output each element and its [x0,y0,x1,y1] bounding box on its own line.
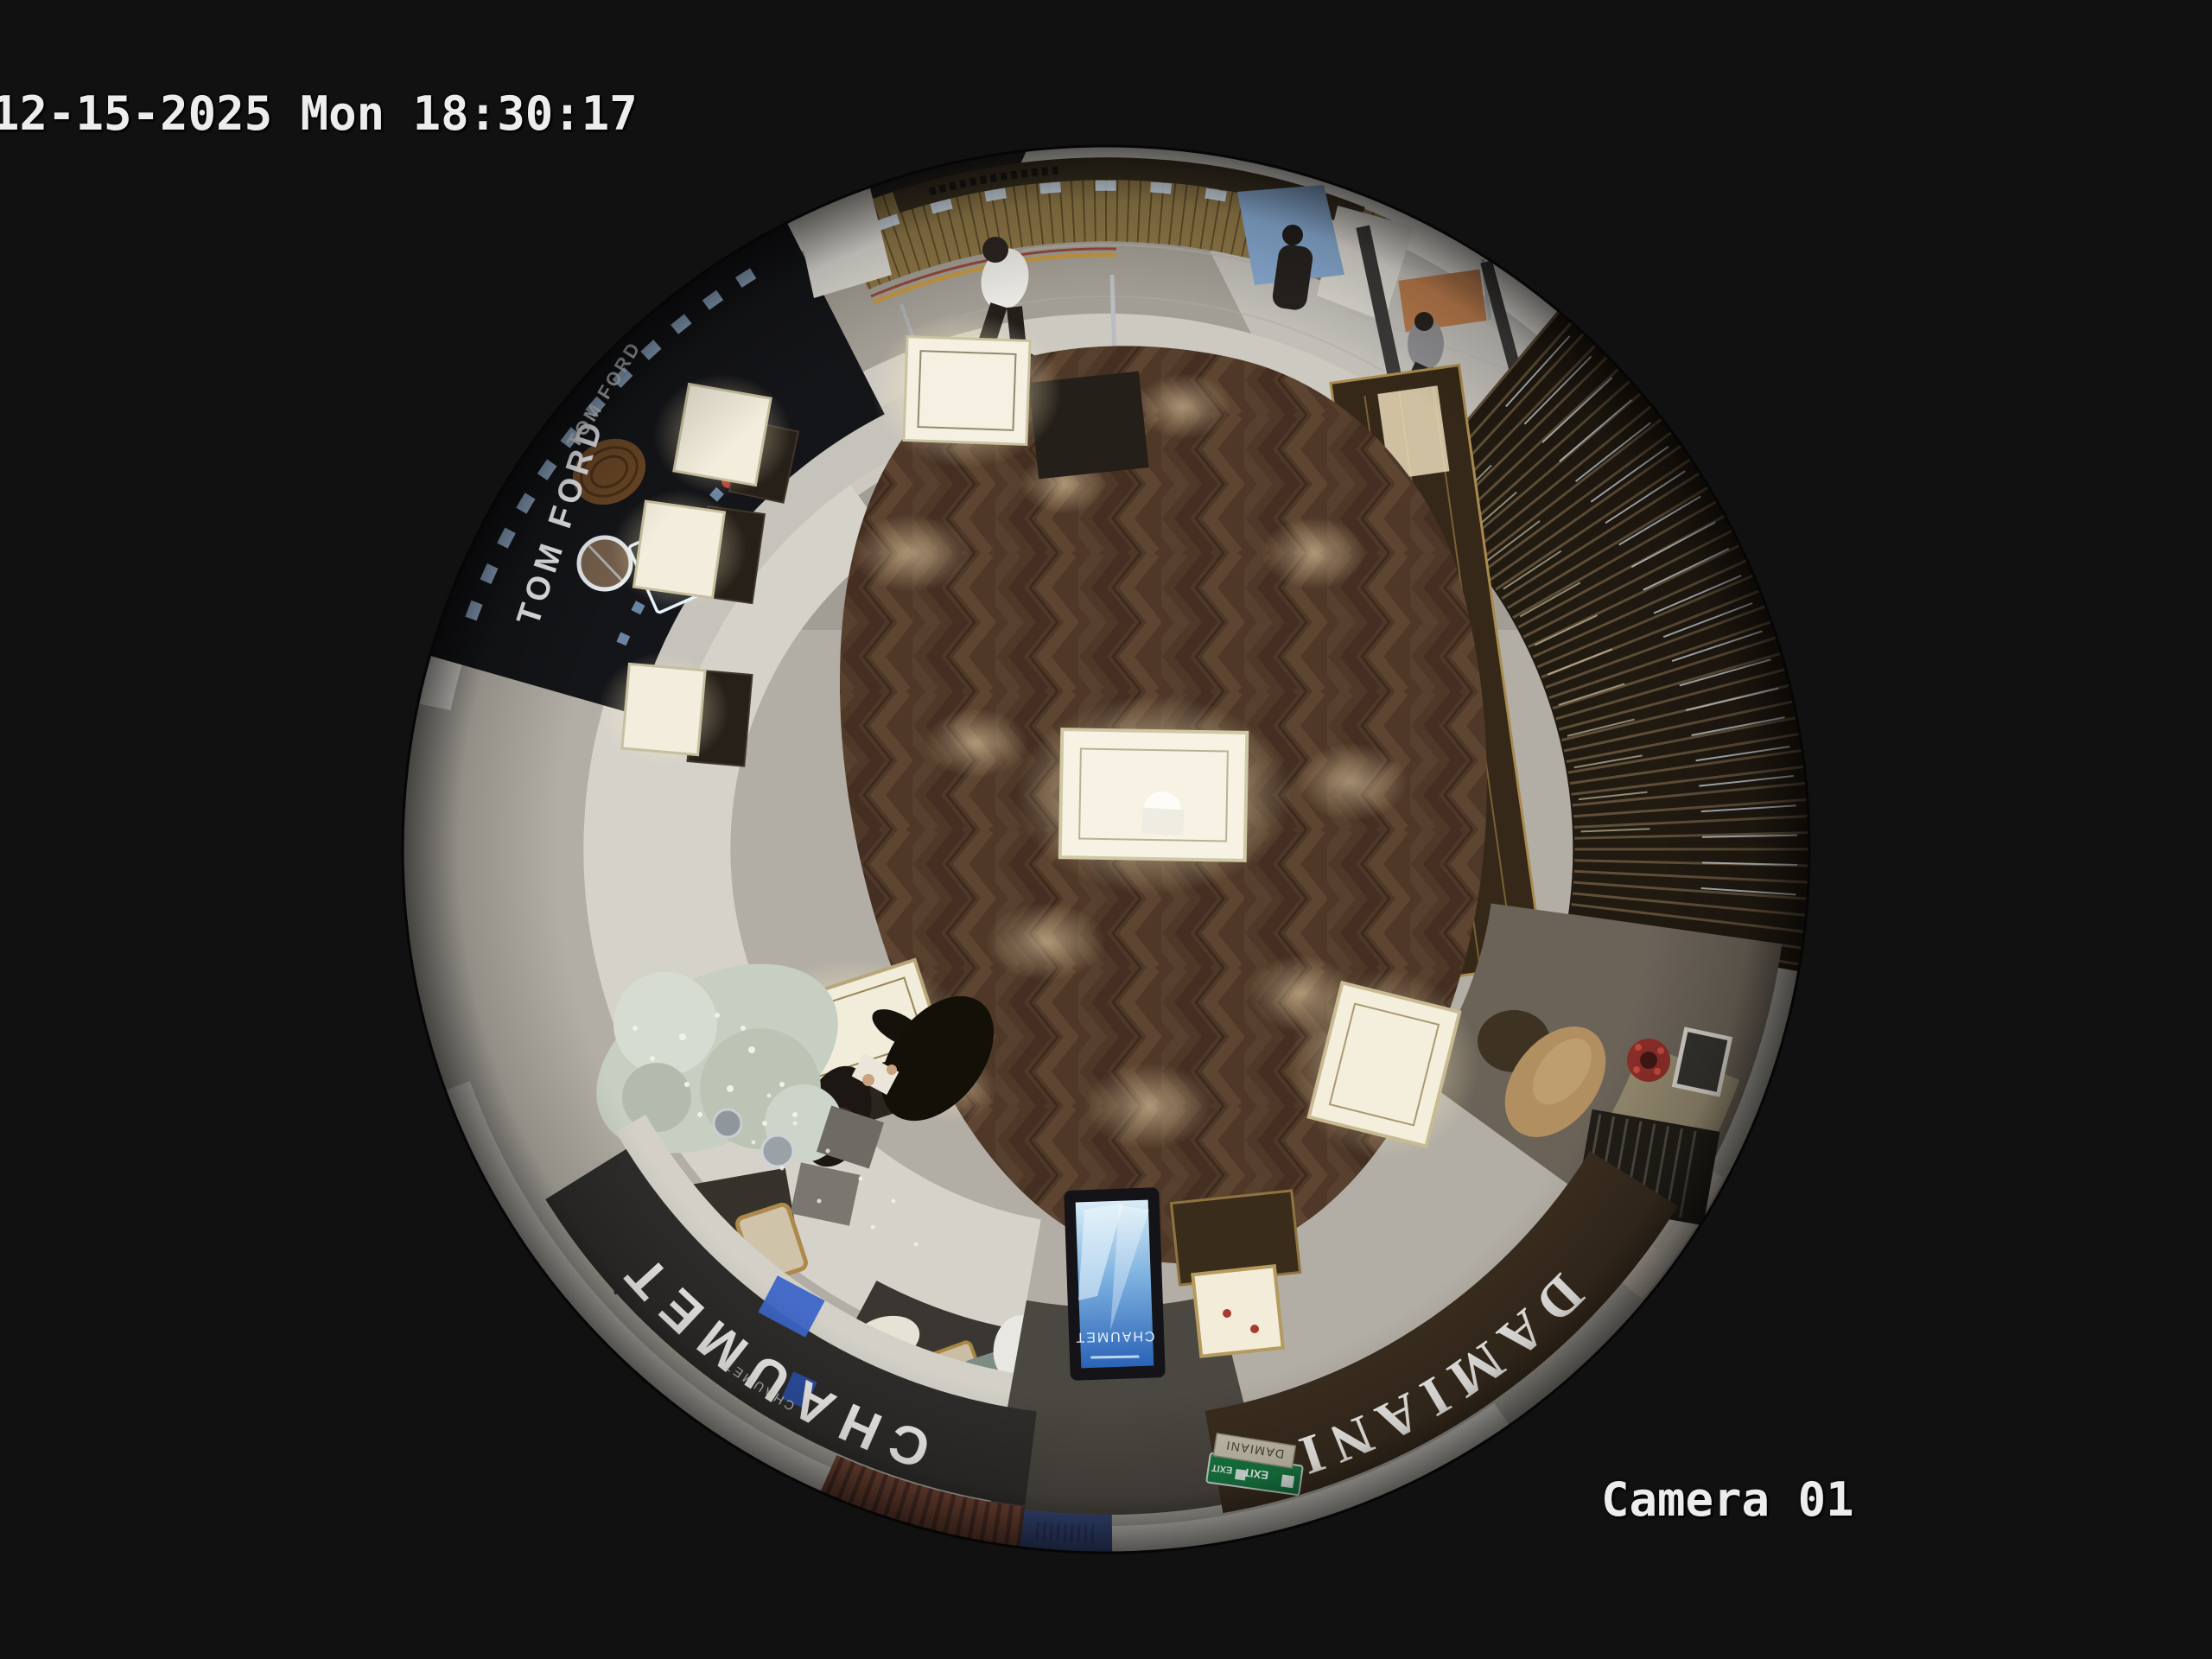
cctv-frame: TF TOM FORD TOM FORD [0,0,2212,1659]
fisheye-camera-view: TF TOM FORD TOM FORD [0,0,2212,1659]
lens-vignette [403,146,1809,1553]
timestamp-overlay: 12-15-2025 Mon 18:30:17 [0,86,638,141]
camera-label-overlay: Camera 01 [1601,1472,1854,1527]
